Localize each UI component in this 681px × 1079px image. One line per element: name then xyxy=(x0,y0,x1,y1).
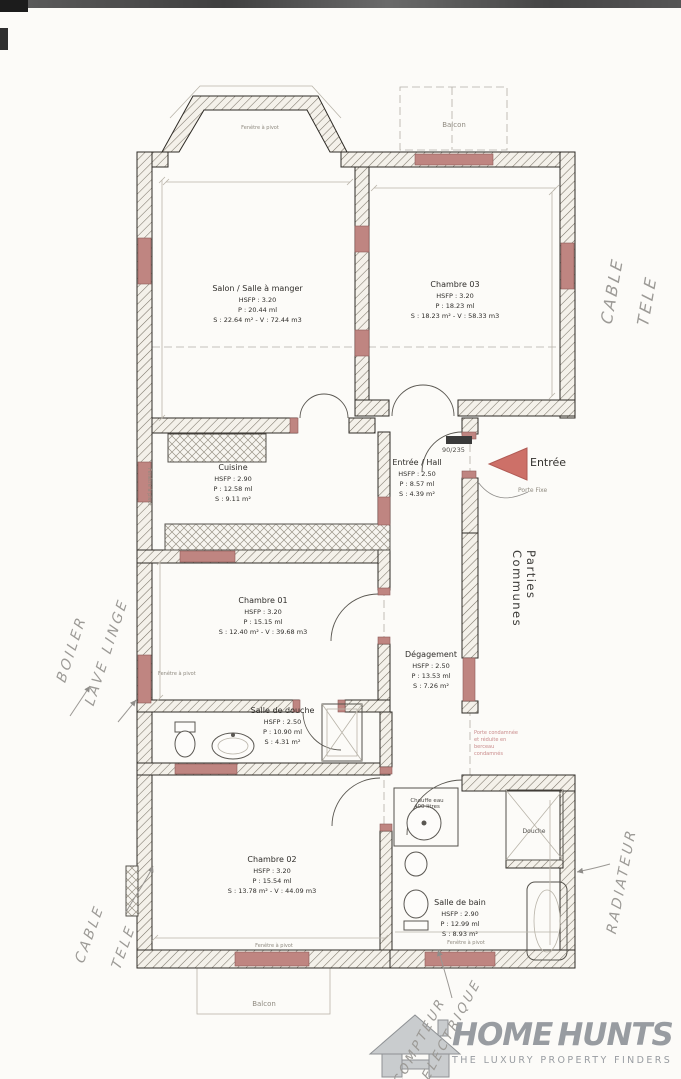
door-dim-box xyxy=(446,436,472,444)
room-label-entree: Entrée / Hall HSFP : 2.50 P : 8.57 ml S … xyxy=(372,458,462,499)
room-label-salon: Salon / Salle à manger HSFP : 3.20 P : 2… xyxy=(180,284,335,325)
door-dimension-label: 90/235 xyxy=(442,446,465,454)
scan-artifact-corner xyxy=(0,0,28,12)
window-label-bay: Fenêtre à pivot xyxy=(210,125,310,131)
parties-communes-label: Parties Communes xyxy=(510,550,538,680)
brand-tagline: THE LUXURY PROPERTY FINDERS xyxy=(452,1055,673,1066)
window-label-chambre01: Fenêtre à pivot xyxy=(158,671,230,677)
room-name: Cuisine xyxy=(178,463,288,472)
radiateur-arrow xyxy=(577,864,610,872)
room-name: Salle de douche xyxy=(225,706,340,715)
scan-artifact-topbar xyxy=(28,0,681,8)
homehunts-logo: HOMEHUNTS THE LUXURY PROPERTY FINDERS xyxy=(452,1020,673,1066)
room-name: Chambre 01 xyxy=(198,596,328,605)
room-name: Entrée / Hall xyxy=(372,458,462,467)
lave-linge-arrow xyxy=(118,700,136,722)
douche-label: Douche xyxy=(508,828,560,835)
room-label-chambre02: Chambre 02 HSFP : 3.20 P : 15.54 ml S : … xyxy=(202,855,342,896)
pink-note: Porte condamnée et réduite en berceau co… xyxy=(474,730,524,758)
room-label-degagement: Dégagement HSFP : 2.50 P : 13.53 ml S : … xyxy=(385,650,477,691)
entrance-arrow-icon xyxy=(489,448,527,480)
room-label-salle-de-douche: Salle de douche HSFP : 2.50 P : 10.90 ml… xyxy=(225,706,340,747)
room-name: Salle de bain xyxy=(410,898,510,907)
window-label-cuisine: Fenêtre à pivot xyxy=(146,468,152,530)
porte-fixe-label: Porte Fixe xyxy=(518,487,547,494)
entree-label: Entrée xyxy=(530,456,566,469)
basin-icon xyxy=(405,852,427,876)
brand-name: HOMEHUNTS xyxy=(452,1020,673,1051)
scan-artifact-left-mark xyxy=(0,28,8,50)
window-label-bain: Fenêtre à pivot xyxy=(430,940,502,946)
toilet-icon xyxy=(175,731,195,757)
chauffe-eau-label: Chauffe eau 400 litres xyxy=(398,798,456,810)
room-label-chambre01: Chambre 01 HSFP : 3.20 P : 15.15 ml S : … xyxy=(198,596,328,637)
balcon-bottom-label: Balcon xyxy=(228,1000,300,1008)
room-name: Dégagement xyxy=(385,650,477,659)
balcon-top-label: Balcon xyxy=(418,121,490,129)
room-label-chambre03: Chambre 03 HSFP : 3.20 P : 18.23 ml S : … xyxy=(390,280,520,321)
room-label-salle-de-bain: Salle de bain HSFP : 2.90 P : 12.99 ml S… xyxy=(410,898,510,939)
room-name: Salon / Salle à manger xyxy=(180,284,335,293)
room-label-cuisine: Cuisine HSFP : 2.90 P : 12.58 ml S : 9.1… xyxy=(178,463,288,504)
scanned-floorplan-page: Salon / Salle à manger HSFP : 3.20 P : 2… xyxy=(0,0,681,1079)
window-label-chambre02: Fenêtre à pivot xyxy=(238,943,310,949)
room-name: Chambre 03 xyxy=(390,280,520,289)
room-name: Chambre 02 xyxy=(202,855,342,864)
